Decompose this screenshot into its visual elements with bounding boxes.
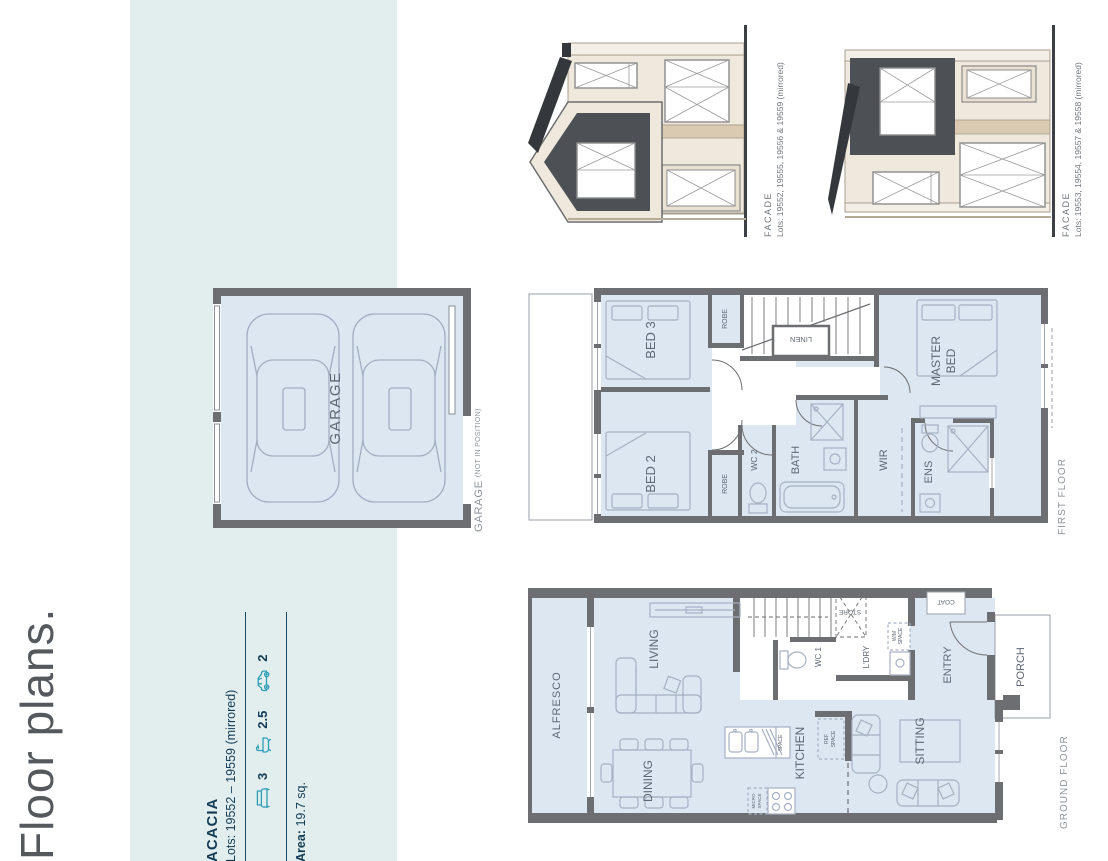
garage-caption-main: GARAGE: [473, 480, 485, 532]
area-value: 19.7 sq.: [294, 782, 308, 826]
room-label-bed3: BED 3: [643, 321, 658, 359]
bath-icon: [254, 735, 271, 755]
room-label-porch: PORCH: [1015, 647, 1027, 687]
cars-count: 2: [255, 654, 270, 661]
bed-icon: [254, 786, 271, 810]
label-micro-space: SPACE: [757, 794, 762, 809]
garage-caption-note: (NOT IN POSITION): [475, 408, 482, 477]
room-label-sitting: SITTING: [913, 717, 927, 764]
facade-1-drawing: [528, 25, 753, 240]
brochure-page: Floor plans. ACACIA Lots: 19552 – 19559 …: [0, 0, 1108, 861]
room-label-master-2: BED: [944, 348, 958, 373]
room-label-kitchen: KITCHEN: [793, 727, 807, 780]
room-label-robe3: ROBE: [722, 309, 729, 329]
garage-room-label: GARAGE: [327, 371, 344, 444]
facade-2-drawing: [828, 25, 1060, 240]
room-label-wc2: WC 2: [749, 449, 759, 471]
facade-2-lots: Lots: 19553, 19554, 19557 & 19558 (mirro…: [1073, 22, 1085, 237]
room-label-ens: ENS: [923, 461, 935, 484]
feature-icons-row: 3 2.5: [246, 612, 279, 861]
ground-floor-caption: GROUND FLOOR: [1059, 737, 1070, 829]
room-label-dining: DINING: [641, 760, 655, 802]
room-label-alfresco: ALFRESCO: [551, 671, 563, 738]
divider: [286, 612, 287, 861]
car-icon: [254, 668, 271, 693]
room-label-wc1: WC 1: [814, 646, 823, 667]
plan-summary: ACACIA Lots: 19552 – 19559 (mirrored) 3: [204, 612, 336, 861]
room-label-living: LIVING: [647, 629, 661, 668]
label-ref-space: SPACE: [831, 730, 837, 747]
room-label-wir: WIR: [878, 449, 890, 470]
room-label-entry: ENTRY: [942, 646, 954, 684]
baths-feature: 2.5: [254, 711, 271, 755]
plan-name: ACACIA: [204, 612, 221, 861]
facade-1-shapes: [528, 25, 747, 237]
void-area: [529, 294, 592, 520]
room-label-store: STORE: [838, 608, 861, 615]
room-label-ldry: L'DRY: [862, 645, 871, 668]
room-label-coat: COAT: [937, 598, 955, 605]
plan-lots: Lots: 19552 – 19559 (mirrored): [224, 612, 238, 861]
beds-count: 3: [255, 773, 270, 780]
area-label: Area:: [294, 830, 308, 861]
cars-feature: 2: [254, 654, 271, 692]
facade-2-shapes: [828, 25, 1055, 237]
label-bench-space: SPACE: [778, 734, 784, 751]
page-title: Floor plans.: [10, 550, 64, 860]
label-ref: REF: [824, 734, 830, 744]
first-floor-plan: BED 3 BED 2 ROBE ROBE WC 2 BATH LINEN WI…: [528, 288, 1060, 530]
room-label-linen: LINEN: [790, 335, 812, 344]
room-label-bed2: BED 2: [643, 455, 658, 493]
ground-floor-plan: ALFRESCO LIVING DINING KITCHEN SITTING E…: [528, 583, 1060, 835]
facade-1-label: FACADE Lots: 19552, 19555, 19556 & 19559…: [762, 22, 796, 237]
service-zone: [740, 598, 910, 700]
room-label-robe2: ROBE: [722, 474, 729, 494]
baths-count: 2.5: [255, 711, 270, 729]
beds-feature: 3: [254, 773, 271, 810]
room-label-bath: BATH: [790, 446, 802, 475]
garage-caption: GARAGE (NOT IN POSITION): [473, 400, 485, 532]
first-floor-caption: FIRST FLOOR: [1057, 447, 1068, 535]
facade-1-title: FACADE: [762, 22, 775, 237]
garage-plan: GARAGE: [213, 288, 471, 528]
facade-2-label: FACADE Lots: 19553, 19554, 19557 & 19558…: [1060, 22, 1094, 237]
facade-1-lots: Lots: 19552, 19555, 19556 & 19559 (mirro…: [775, 22, 787, 237]
room-label-master-1: MASTER: [929, 336, 943, 386]
label-wm-space: SPACE: [898, 627, 904, 644]
label-micro: MICRO: [751, 793, 756, 808]
facade-2-title: FACADE: [1060, 22, 1073, 237]
area-line: Area: 19.7 sq.: [294, 612, 308, 861]
